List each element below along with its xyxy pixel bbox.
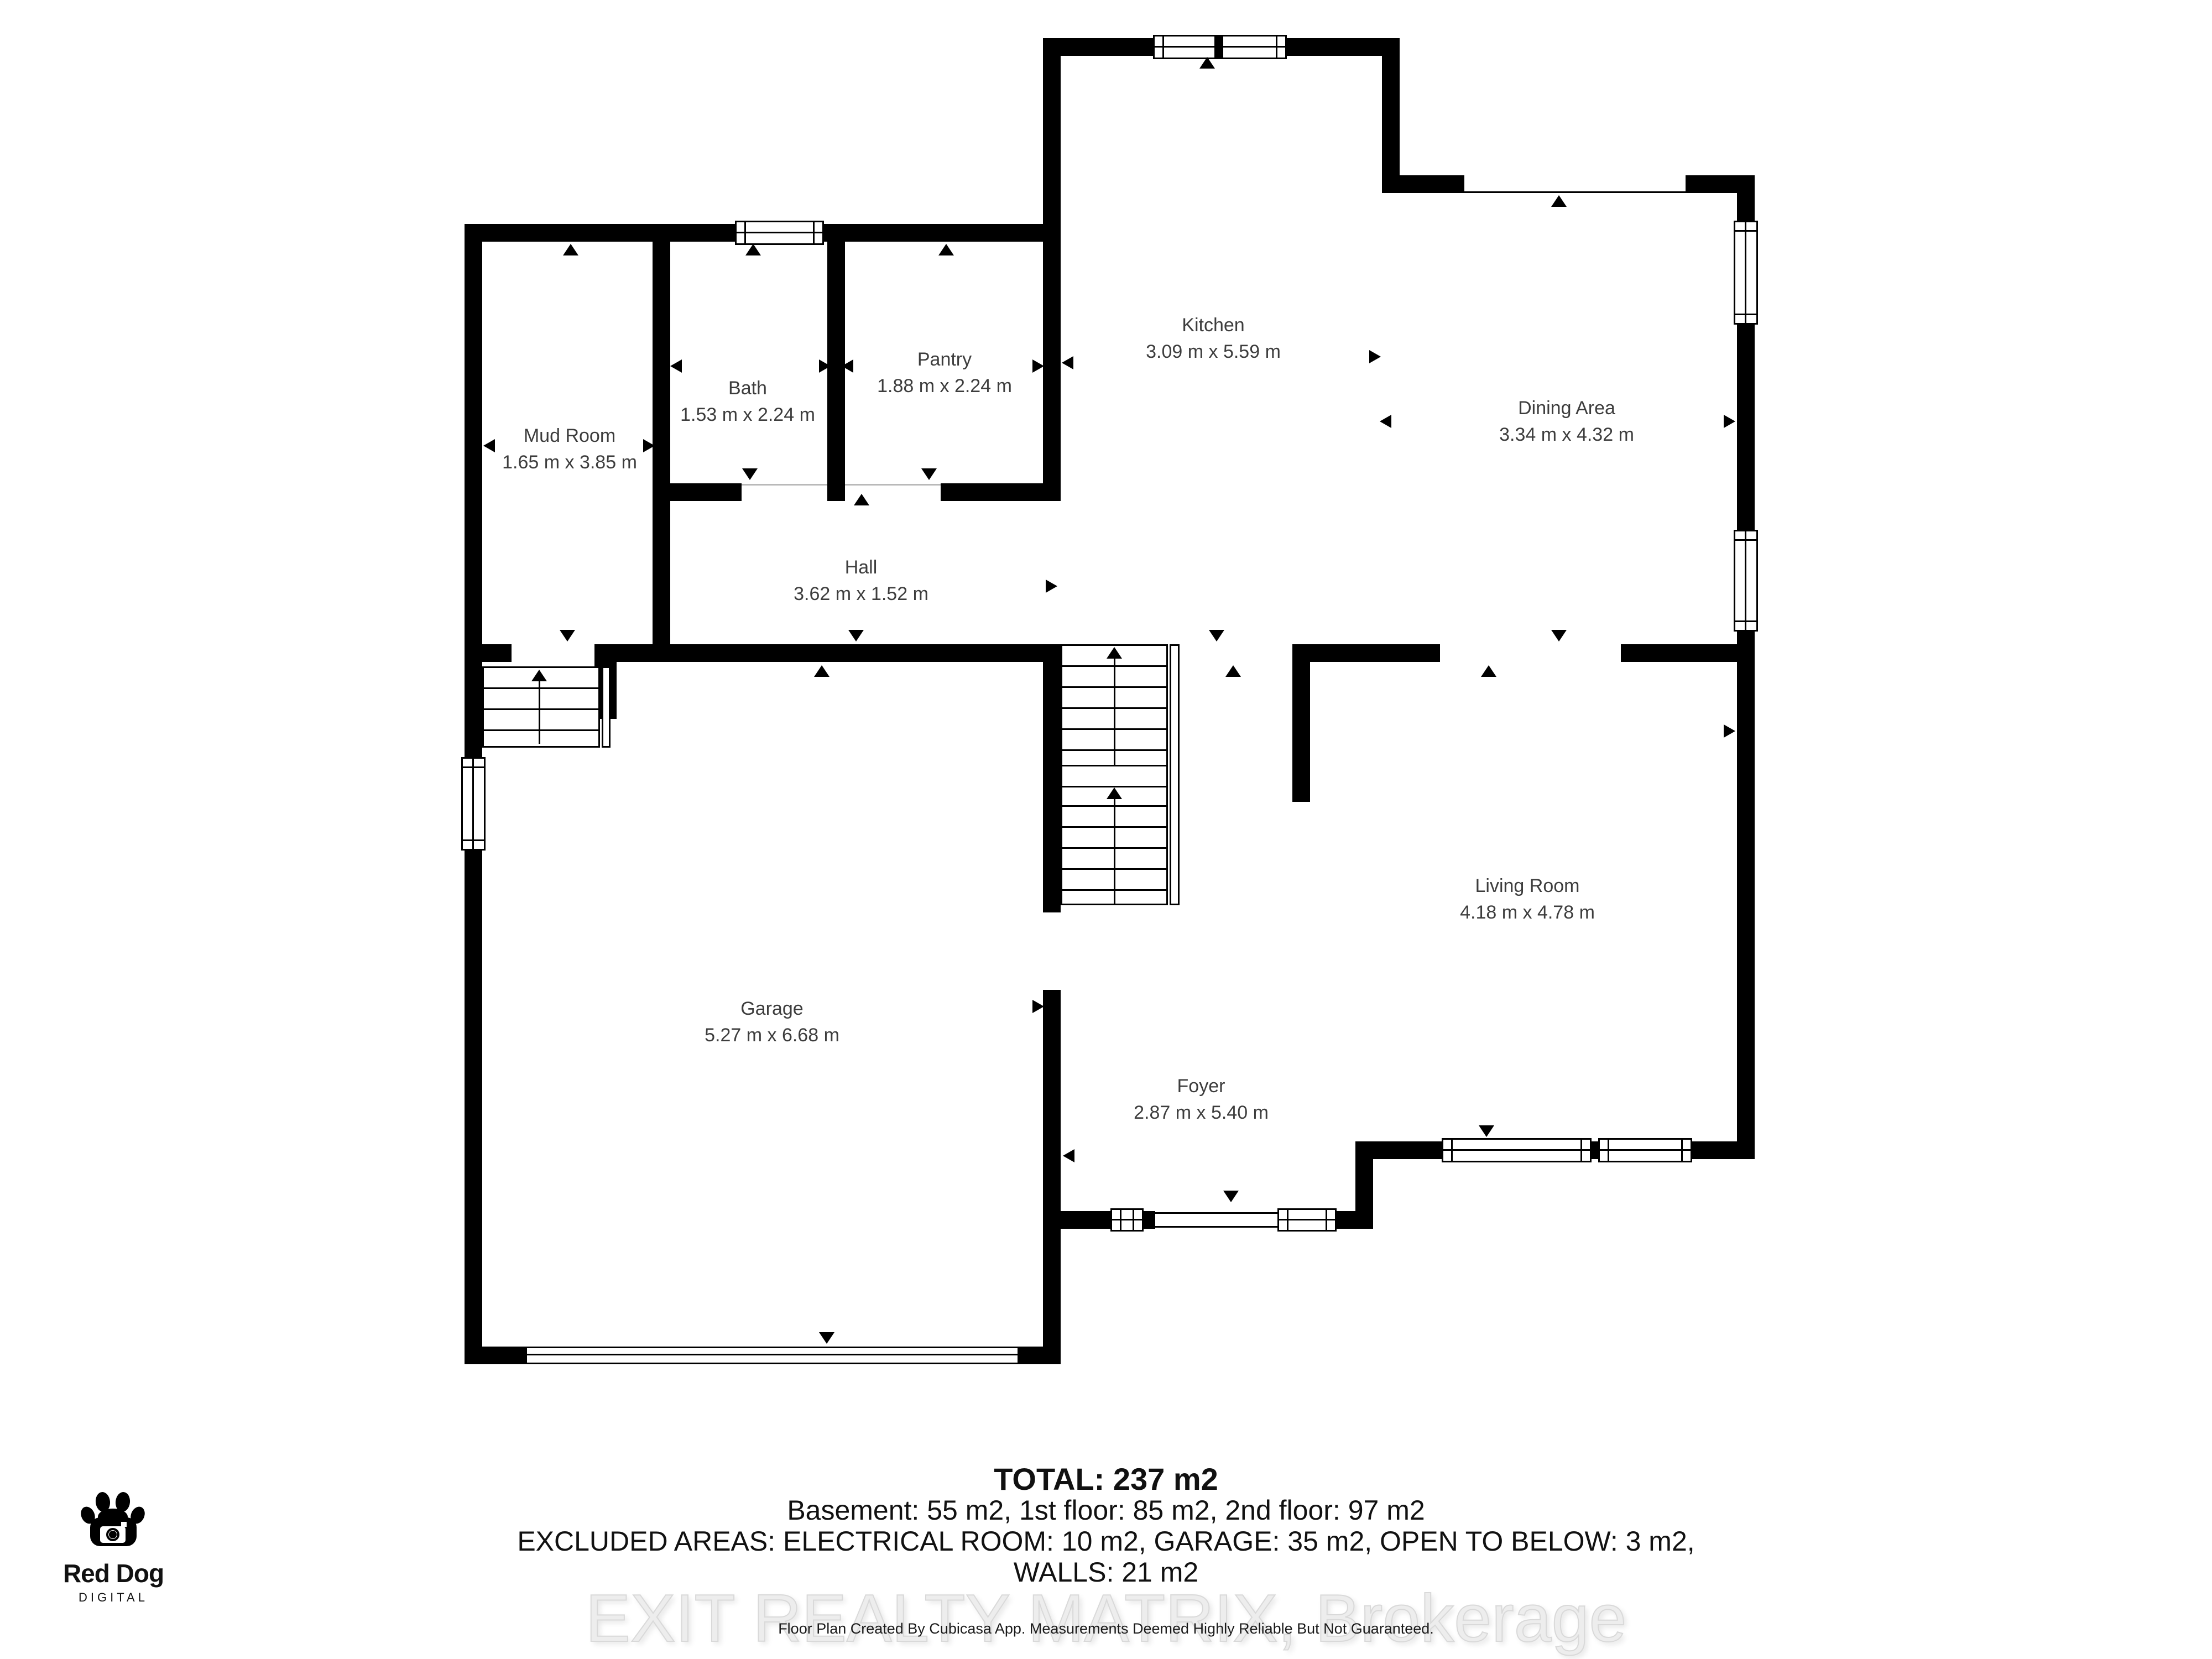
room-label-mud-room: Mud Room 1.65 m x 3.85 m [502, 422, 637, 476]
wall [670, 483, 742, 501]
wall [824, 224, 1043, 242]
room-dims: 3.34 m x 4.32 m [1499, 421, 1634, 448]
door-arrow-down-icon [1479, 1125, 1494, 1137]
wall [941, 483, 1043, 501]
room-label-bath: Bath 1.53 m x 2.24 m [680, 375, 815, 428]
room-name: Living Room [1460, 873, 1595, 899]
room-dims: 1.88 m x 2.24 m [877, 373, 1012, 399]
stair-direction-arrow [1114, 799, 1115, 904]
door-arrow-left-icon [1380, 415, 1391, 428]
door-arrow-up-icon [1225, 665, 1241, 677]
wall [594, 644, 1043, 662]
garage-door [525, 1347, 1019, 1364]
room-dims: 2.87 m x 5.40 m [1134, 1099, 1269, 1126]
room-name: Hall [794, 554, 928, 581]
camera-icon [100, 1526, 126, 1543]
floor-plan: Mud Room 1.65 m x 3.85 m Bath 1.53 m x 2… [0, 0, 2212, 1659]
room-dims: 1.65 m x 3.85 m [502, 449, 637, 476]
wall [465, 644, 512, 662]
stair-landing [1062, 765, 1166, 787]
wall [1043, 1211, 1110, 1229]
wall [1292, 644, 1440, 662]
wall [465, 224, 482, 666]
room-label-pantry: Pantry 1.88 m x 2.24 m [877, 346, 1012, 399]
door-arrow-right-icon [1724, 415, 1735, 428]
door-threshold-line [1155, 1226, 1277, 1228]
wall [653, 242, 670, 644]
wall [1737, 322, 1755, 532]
door-arrow-up-icon [745, 244, 761, 255]
window [461, 757, 486, 851]
room-name: Bath [680, 375, 815, 401]
window [1734, 221, 1758, 325]
walls-area-text: WALLS: 21 m2 [0, 1556, 2212, 1588]
door-arrow-down-icon [742, 468, 758, 480]
room-dims: 3.62 m x 1.52 m [794, 581, 928, 607]
wall [1737, 175, 1755, 223]
logo-name: Red Dog [58, 1558, 169, 1588]
door-arrow-up-icon [1551, 195, 1567, 207]
door-arrow-right-icon [1032, 359, 1044, 373]
door-threshold-line [742, 484, 827, 486]
door-arrow-down-icon [560, 630, 575, 641]
door-arrow-up-icon [1481, 665, 1496, 677]
door-threshold-line [1155, 1212, 1277, 1214]
door-arrow-down-icon [848, 630, 864, 641]
stair-direction-arrow [1114, 659, 1115, 765]
room-name: Pantry [877, 346, 1012, 373]
brokerage-watermark: EXIT REALTY MATRIX, Brokerage [0, 1579, 2212, 1657]
wall [1043, 38, 1061, 501]
room-name: Garage [705, 995, 839, 1022]
stair-rail [602, 666, 611, 748]
wall [1043, 38, 1153, 56]
floor-areas-text: Basement: 55 m2, 1st floor: 85 m2, 2nd f… [0, 1494, 2212, 1526]
door-arrow-up-icon [938, 244, 954, 255]
room-dims: 5.27 m x 6.68 m [705, 1022, 839, 1048]
window-mullion [1214, 35, 1223, 59]
door-arrow-left-icon [1063, 1149, 1074, 1162]
wall [1144, 1211, 1155, 1229]
door-arrow-up-icon [563, 244, 578, 255]
door-arrow-left-icon [842, 359, 853, 373]
door-arrow-up-icon [814, 665, 830, 677]
window [1277, 1208, 1337, 1232]
window [1110, 1208, 1144, 1232]
room-label-kitchen: Kitchen 3.09 m x 5.59 m [1146, 312, 1281, 365]
wall [465, 666, 482, 757]
room-dims: 4.18 m x 4.78 m [1460, 899, 1595, 926]
wall [1043, 990, 1061, 1364]
stair-direction-arrow [539, 681, 540, 744]
stair-direction-arrow [531, 670, 547, 681]
room-label-living-room: Living Room 4.18 m x 4.78 m [1460, 873, 1595, 926]
excluded-areas-text: EXCLUDED AREAS: ELECTRICAL ROOM: 10 m2, … [0, 1525, 2212, 1557]
door-arrow-down-icon [921, 468, 937, 480]
stair-direction-arrow [1107, 647, 1122, 659]
wall [465, 1347, 525, 1364]
disclaimer-text: Floor Plan Created By Cubicasa App. Meas… [0, 1620, 2212, 1637]
door-arrow-right-icon [819, 359, 831, 373]
wall [1337, 1211, 1355, 1229]
door-arrow-right-icon [1046, 580, 1057, 593]
room-name: Dining Area [1499, 395, 1634, 421]
door-arrow-right-icon [643, 439, 655, 452]
door-arrow-up-icon [1199, 57, 1215, 69]
door-arrow-down-icon [819, 1332, 834, 1344]
wall [1355, 1141, 1373, 1229]
wall [465, 851, 482, 1364]
wall [1692, 1141, 1755, 1159]
wall [1737, 629, 1755, 1159]
stair-direction-arrow [1107, 787, 1122, 799]
wall [1621, 644, 1755, 662]
wall [465, 224, 735, 242]
paw-camera-icon [81, 1492, 145, 1557]
door-arrow-down-icon [1209, 630, 1224, 641]
wall [1373, 1141, 1442, 1159]
room-label-dining-area: Dining Area 3.34 m x 4.32 m [1499, 395, 1634, 448]
wall [1592, 1141, 1598, 1159]
window [1442, 1138, 1592, 1162]
door-arrow-down-icon [1551, 630, 1567, 641]
open-boundary-line [1464, 191, 1686, 193]
door-arrow-left-icon [670, 359, 682, 373]
door-arrow-left-icon [1062, 356, 1073, 369]
wall [1382, 38, 1400, 175]
room-label-garage: Garage 5.27 m x 6.68 m [705, 995, 839, 1048]
room-dims: 3.09 m x 5.59 m [1146, 338, 1281, 365]
wall [1043, 644, 1061, 912]
door-arrow-down-icon [1223, 1191, 1239, 1202]
door-arrow-right-icon [1724, 724, 1735, 738]
window [1598, 1138, 1692, 1162]
room-name: Foyer [1134, 1073, 1269, 1099]
wall [1382, 175, 1464, 193]
stair-rail [1170, 644, 1180, 905]
door-arrow-left-icon [483, 439, 495, 452]
door-arrow-right-icon [1032, 1000, 1044, 1013]
room-dims: 1.53 m x 2.24 m [680, 401, 815, 428]
door-arrow-up-icon [854, 494, 869, 505]
total-area-text: TOTAL: 237 m2 [0, 1461, 2212, 1497]
logo-subtitle: DIGITAL [58, 1590, 169, 1605]
door-arrow-right-icon [1369, 350, 1381, 363]
window [735, 221, 824, 245]
room-label-hall: Hall 3.62 m x 1.52 m [794, 554, 928, 607]
wall [1292, 644, 1310, 802]
room-name: Mud Room [502, 422, 637, 449]
room-label-foyer: Foyer 2.87 m x 5.40 m [1134, 1073, 1269, 1126]
reddog-logo: Red Dog DIGITAL [58, 1492, 169, 1605]
door-threshold-line [845, 484, 941, 486]
window [1734, 530, 1758, 632]
room-name: Kitchen [1146, 312, 1281, 338]
